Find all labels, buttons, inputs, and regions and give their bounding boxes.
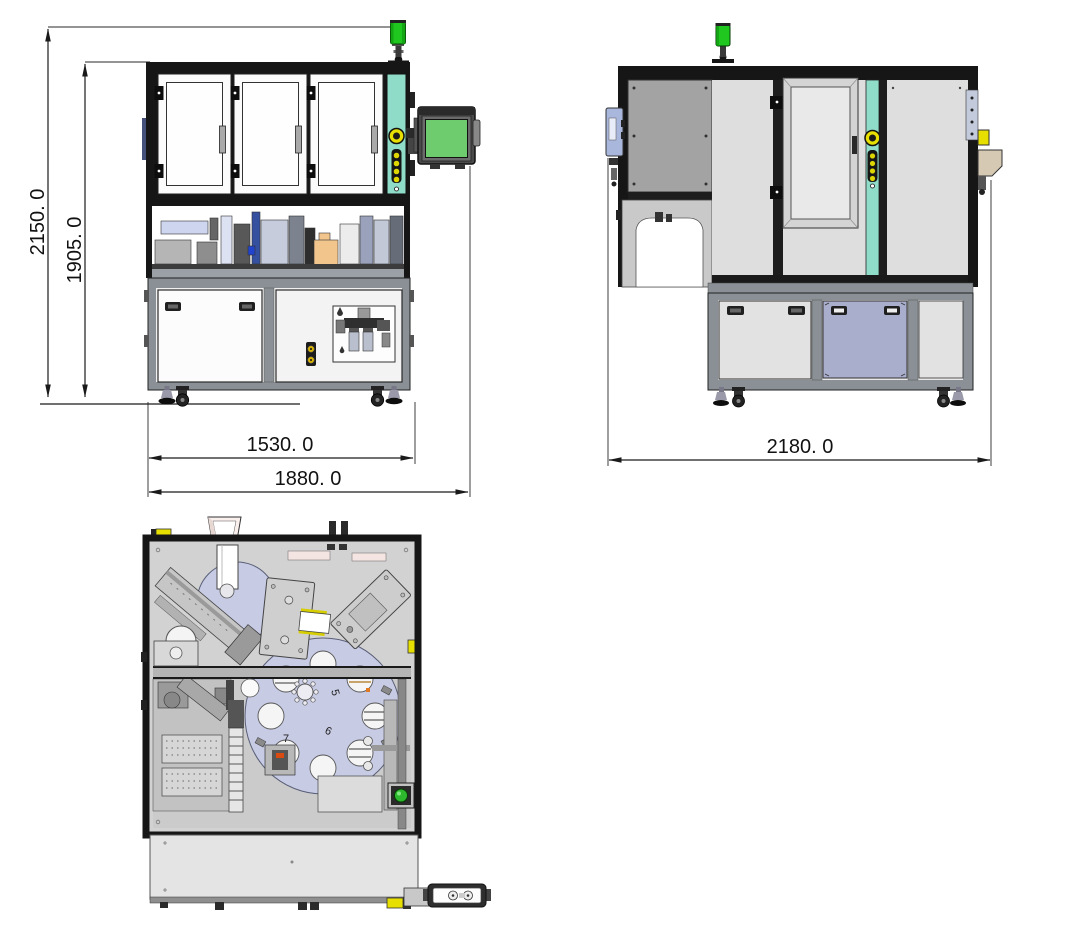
side-main-enclosure <box>708 66 1002 295</box>
top-divider-bar <box>153 666 411 679</box>
indicator-dot <box>395 187 399 191</box>
dim-text-side-width: 2180. 0 <box>767 436 834 458</box>
top-view: 5 6 7 <box>141 517 491 910</box>
drawer-handle <box>884 306 900 315</box>
air-connector-block <box>306 342 316 366</box>
enclosure-front <box>142 62 415 206</box>
door-hinge <box>307 86 316 100</box>
drawer-handle <box>239 302 255 311</box>
hmi-monitor-front <box>406 107 480 169</box>
front-dim-frame-height: 1905. 0 <box>64 62 150 397</box>
machinery-compartment-front <box>146 206 410 278</box>
door-handle <box>372 126 378 153</box>
dim-text-overall-height: 2150. 0 <box>27 189 49 256</box>
caster-wheel <box>732 387 745 407</box>
door-handle <box>220 126 226 153</box>
dim-text-inner-width: 1530. 0 <box>247 434 314 456</box>
yellow-switch-side <box>978 130 989 145</box>
door-hinge <box>307 164 316 178</box>
pneumatic-panel <box>276 290 402 382</box>
drawer-handle <box>831 306 847 315</box>
cabinet-door-left <box>719 301 811 379</box>
table-station <box>258 703 284 729</box>
frl-unit <box>333 306 395 362</box>
cabinet-door-blue <box>823 301 907 378</box>
door-panel-2 <box>231 74 308 194</box>
control-buttons <box>392 149 402 183</box>
door-hinge <box>155 86 164 100</box>
hmi-screen <box>426 120 468 158</box>
base-cabinet-front <box>144 278 414 390</box>
door-hinge <box>155 164 164 178</box>
operator-column-side <box>865 80 880 287</box>
top-front-tray <box>150 835 418 910</box>
cabinet-panel-right <box>919 301 963 378</box>
operator-panel-front <box>387 74 406 194</box>
start-button-top <box>388 783 414 808</box>
drawer-handle <box>165 302 181 311</box>
door-panel-1 <box>155 74 232 194</box>
feeder-end <box>241 679 259 697</box>
door-hinge <box>770 96 784 109</box>
door-handle <box>852 136 857 154</box>
front-view: 2150. 0 1905. 0 1530. 0 1880. 0 <box>27 20 480 497</box>
pallet-grid <box>162 735 222 763</box>
signal-tower-side <box>712 23 734 63</box>
door-hinge <box>231 86 240 100</box>
drawer-panel <box>158 290 262 382</box>
engineering-drawing: 2150. 0 1905. 0 1530. 0 1880. 0 <box>0 0 1089 936</box>
door-hinge <box>770 186 784 199</box>
drawer-handle <box>788 306 805 315</box>
monitor-bracket-side <box>978 150 1002 195</box>
hinge-strip <box>966 90 978 140</box>
dim-text-overall-width: 1880. 0 <box>275 468 342 490</box>
base-cabinet-side <box>708 293 973 390</box>
emergency-stop-button <box>389 129 404 144</box>
pallet-grid <box>162 768 222 796</box>
side-door-window <box>783 78 858 228</box>
caster-wheel <box>371 386 384 406</box>
dim-text-frame-height: 1905. 0 <box>64 217 86 284</box>
signal-tower-front <box>388 20 409 65</box>
door-hinge <box>231 164 240 178</box>
station-label-7: 7 <box>283 733 289 745</box>
side-view: 2180. 0 <box>606 23 1002 466</box>
ladder-rail <box>228 700 244 812</box>
left-edge-unit <box>154 641 198 666</box>
caster-wheel <box>937 387 950 407</box>
caster-wheel <box>176 386 189 406</box>
emergency-stop-button <box>865 131 880 146</box>
tray-loader-block <box>153 675 234 811</box>
drawer-handle <box>727 306 744 315</box>
table-sun-gear <box>292 679 318 705</box>
side-left-table <box>616 80 712 287</box>
door-handle <box>296 126 302 153</box>
bottom-station-unit <box>265 745 295 775</box>
drawing-canvas: 2150. 0 1905. 0 1530. 0 1880. 0 <box>0 0 1089 936</box>
control-buttons <box>868 150 878 182</box>
door-panel-3 <box>307 74 384 194</box>
